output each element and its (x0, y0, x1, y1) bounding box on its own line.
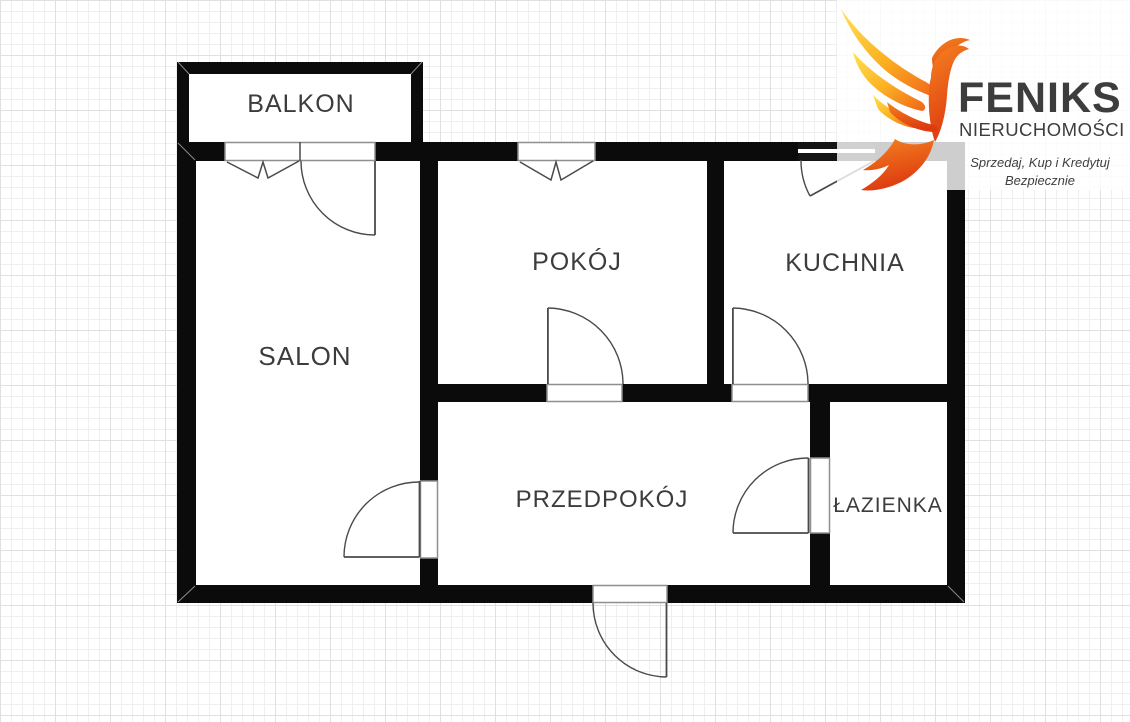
lazienka-door-opening (811, 458, 830, 533)
room-label-przedpokoj: PRZEDPOKÓJ (516, 486, 689, 513)
pokoj-window-opening (518, 143, 595, 161)
brand-name: FENIKS (958, 77, 1122, 120)
room-label-balkon: BALKON (247, 90, 354, 118)
room-label-kuchnia: KUCHNIA (785, 249, 905, 277)
phoenix-wing (841, 9, 937, 128)
brand-subtitle: NIERUCHOMOŚCI (959, 121, 1125, 140)
salon-door-opening (421, 481, 438, 558)
brand-tagline: Sprzedaj, Kup i Kredytuj Bezpiecznie (950, 154, 1130, 189)
tagline-line-2: Bezpiecznie (950, 172, 1130, 190)
kuchnia-door-opening (732, 385, 808, 402)
room-label-salon: SALON (258, 341, 351, 371)
room-label-pokoj: POKÓJ (532, 247, 622, 276)
entrance-door-arc (593, 603, 667, 677)
entrance-door-opening (593, 586, 667, 603)
tagline-line-1: Sprzedaj, Kup i Kredytuj (950, 154, 1130, 172)
room-label-lazienka: ŁAZIENKA (833, 494, 943, 517)
pokoj-door-opening (547, 385, 622, 402)
